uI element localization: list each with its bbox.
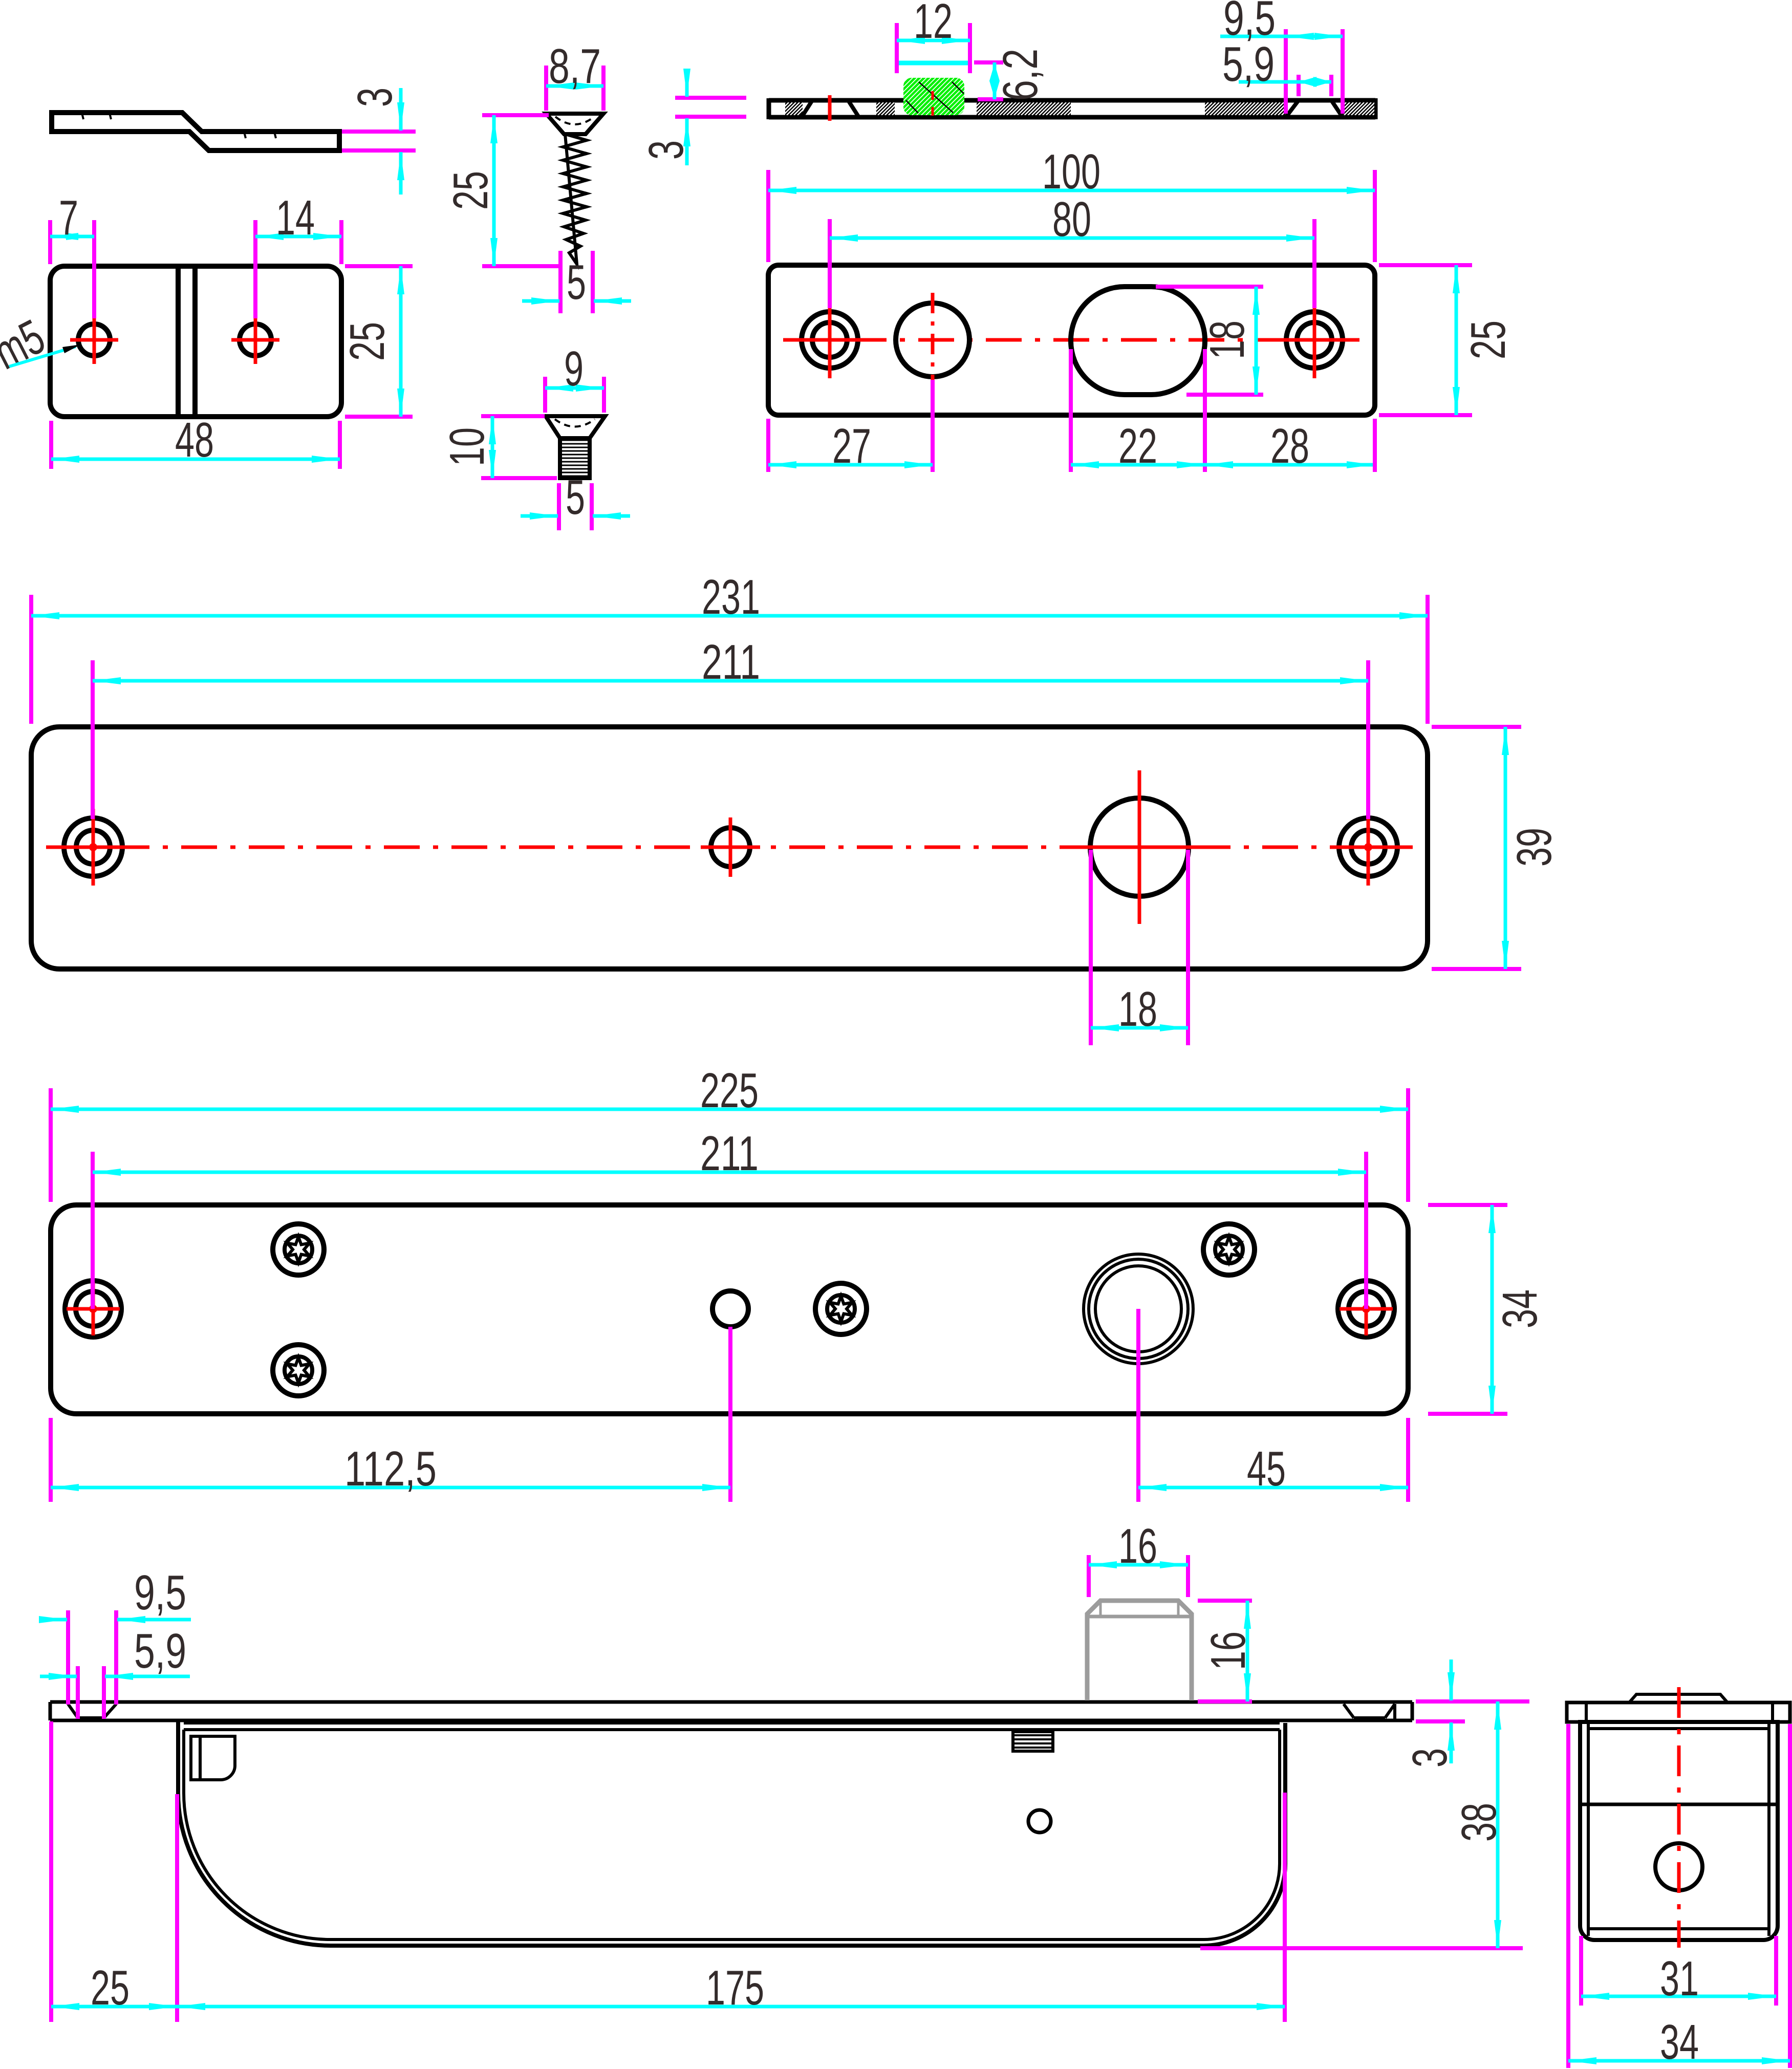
svg-text:3: 3 [639, 140, 694, 160]
svg-text:25: 25 [443, 171, 498, 210]
svg-text:12: 12 [914, 0, 953, 49]
svg-text:5: 5 [566, 470, 585, 525]
svg-text:34: 34 [1493, 1289, 1547, 1328]
svg-text:231: 231 [702, 570, 760, 624]
svg-text:5,9: 5,9 [1222, 37, 1275, 92]
svg-text:14: 14 [276, 190, 315, 245]
svg-text:22: 22 [1118, 419, 1157, 473]
svg-text:45: 45 [1247, 1441, 1286, 1496]
svg-text:175: 175 [706, 1960, 764, 2015]
svg-text:10: 10 [440, 427, 494, 466]
svg-text:225: 225 [700, 1063, 759, 1118]
svg-text:8,7: 8,7 [549, 39, 601, 94]
svg-text:34: 34 [1660, 2015, 1699, 2069]
svg-text:31: 31 [1660, 1951, 1699, 2006]
svg-text:25: 25 [340, 322, 395, 361]
svg-text:28: 28 [1270, 419, 1309, 473]
svg-text:9: 9 [564, 341, 584, 396]
svg-text:80: 80 [1052, 192, 1091, 247]
svg-text:16: 16 [1118, 1519, 1157, 1574]
svg-text:39: 39 [1507, 828, 1562, 867]
svg-text:5: 5 [567, 255, 586, 310]
svg-text:25: 25 [1461, 320, 1516, 359]
svg-text:6,2: 6,2 [993, 49, 1048, 101]
svg-text:48: 48 [175, 413, 214, 467]
svg-text:3: 3 [348, 88, 402, 107]
svg-text:18: 18 [1200, 320, 1255, 359]
svg-text:100: 100 [1042, 144, 1100, 199]
svg-text:25: 25 [91, 1960, 129, 2015]
svg-text:9,5: 9,5 [134, 1565, 186, 1620]
svg-text:211: 211 [702, 635, 760, 689]
svg-text:5,9: 5,9 [134, 1624, 186, 1678]
svg-text:16: 16 [1201, 1631, 1256, 1670]
svg-text:18: 18 [1118, 982, 1157, 1037]
svg-text:38: 38 [1452, 1803, 1506, 1842]
svg-text:112,5: 112,5 [344, 1441, 437, 1496]
svg-text:27: 27 [832, 419, 871, 473]
svg-text:3: 3 [1402, 1748, 1457, 1768]
svg-text:211: 211 [700, 1126, 759, 1181]
svg-text:7: 7 [59, 190, 78, 245]
